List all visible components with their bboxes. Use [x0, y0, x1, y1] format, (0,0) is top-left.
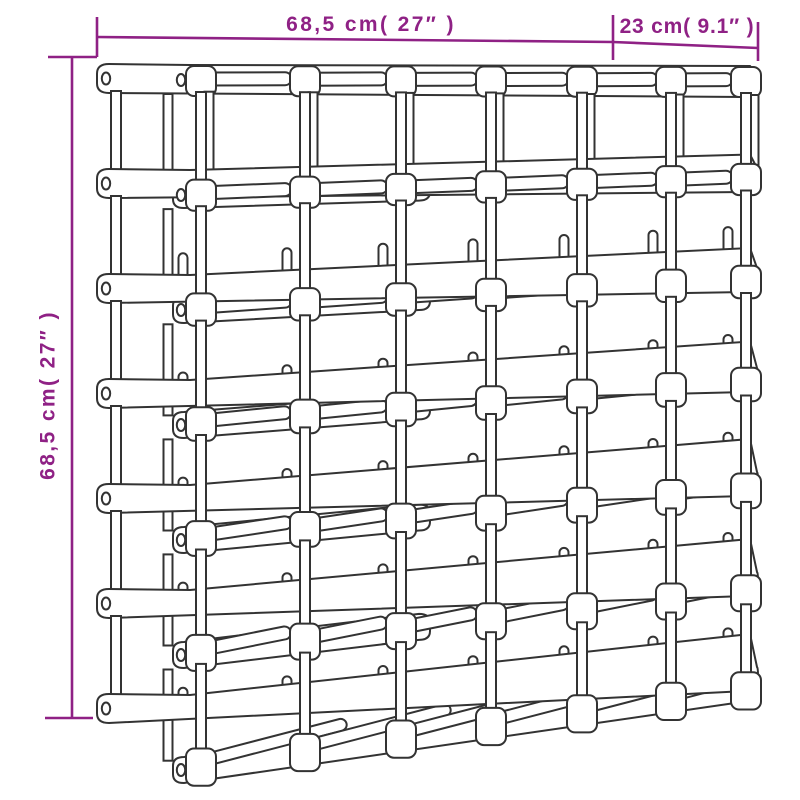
svg-text:23 cm( 9.1″ ): 23 cm( 9.1″ ) [620, 15, 755, 38]
svg-text:68,5 cm( 27″ ): 68,5 cm( 27″ ) [37, 310, 60, 480]
svg-text:68,5 cm( 27″ ): 68,5 cm( 27″ ) [286, 13, 456, 36]
